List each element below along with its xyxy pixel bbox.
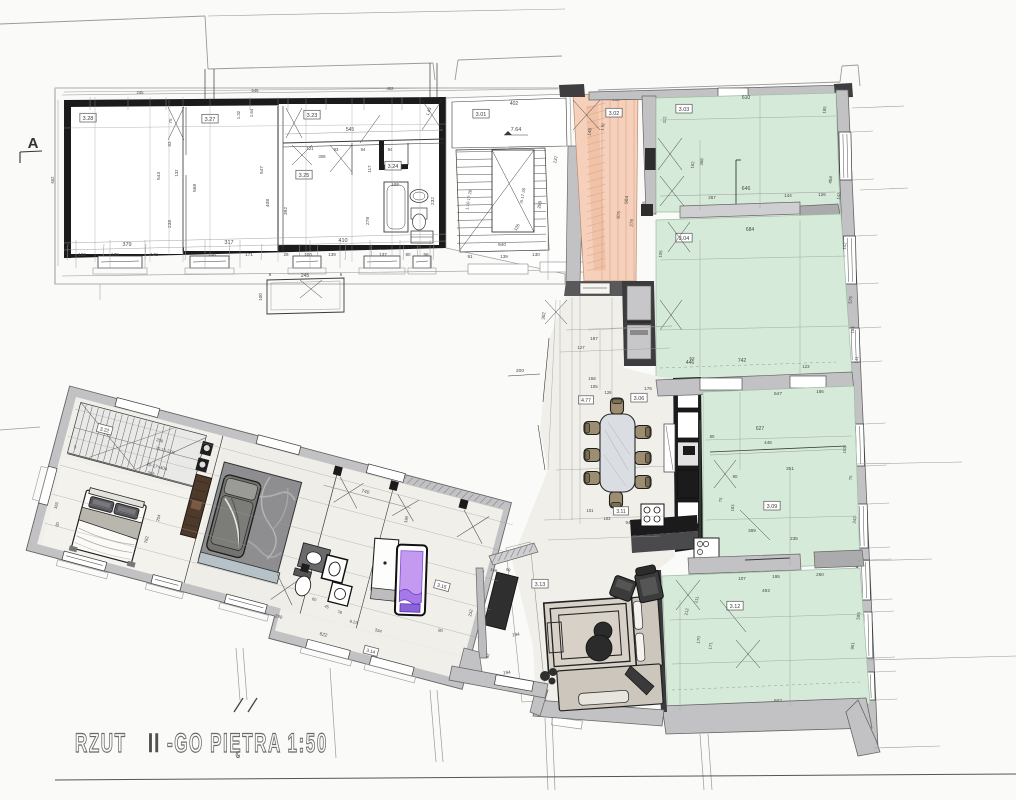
svg-text:742: 742 [738,358,747,364]
svg-text:80: 80 [733,474,738,479]
svg-text:80: 80 [710,434,715,439]
svg-text:132: 132 [174,169,179,177]
svg-text:3.13: 3.13 [535,582,546,588]
svg-text:243: 243 [852,515,858,523]
svg-text:101: 101 [587,508,595,513]
svg-text:176: 176 [644,386,652,391]
svg-text:940: 940 [498,242,506,248]
svg-text:3.09: 3.09 [767,504,778,510]
svg-text:112: 112 [662,116,668,124]
svg-text:610: 610 [742,95,751,101]
svg-text:260: 260 [816,572,824,577]
svg-text:143: 143 [836,191,842,199]
svg-text:3.11: 3.11 [616,509,626,515]
svg-text:94: 94 [388,147,393,152]
svg-text:627: 627 [756,426,765,432]
svg-text:951: 951 [850,641,856,649]
svg-text:404: 404 [828,175,834,183]
svg-text:130: 130 [532,252,540,257]
svg-text:183: 183 [604,516,612,521]
svg-text:575: 575 [848,295,854,303]
svg-text:183: 183 [850,325,856,333]
svg-text:107: 107 [738,576,746,581]
svg-text:RZUT: RZUT [75,728,127,758]
svg-text:121: 121 [306,146,314,151]
svg-text:52: 52 [689,356,695,361]
svg-text:139: 139 [500,254,508,259]
svg-text:168: 168 [588,376,596,381]
svg-text:100: 100 [258,293,263,301]
svg-text:163: 163 [842,446,848,454]
svg-text:595: 595 [856,611,862,619]
svg-text:171: 171 [708,641,714,649]
svg-text:142: 142 [842,241,848,249]
svg-text:267: 267 [708,195,716,200]
svg-text:75: 75 [168,118,173,124]
svg-text:142: 142 [150,252,158,257]
svg-text:492: 492 [762,588,770,594]
svg-text:122: 122 [391,182,399,187]
svg-text:7.64: 7.64 [511,127,522,133]
svg-text:187: 187 [590,336,598,341]
svg-text:392: 392 [283,207,289,215]
svg-text:126: 126 [818,192,826,197]
svg-text:-GO PIĘTRA 1:50: -GO PIĘTRA 1:50 [167,728,328,758]
svg-text:80: 80 [405,252,411,257]
svg-text:200: 200 [516,368,524,374]
svg-text:185: 185 [822,105,828,113]
svg-text:662: 662 [50,176,55,184]
svg-text:547: 547 [774,391,782,397]
svg-text:245: 245 [137,90,145,95]
svg-text:139: 139 [328,252,336,257]
svg-text:402: 402 [387,86,395,91]
svg-text:162: 162 [690,160,696,168]
svg-text:3.28: 3.28 [83,116,94,122]
svg-text:141: 141 [854,355,860,363]
svg-text:408: 408 [265,199,271,207]
svg-text:3.23: 3.23 [307,113,318,119]
svg-text:278: 278 [629,219,634,227]
svg-text:568: 568 [192,184,198,192]
svg-text:446: 446 [764,440,772,445]
svg-text:232: 232 [430,197,436,205]
svg-text:94: 94 [361,147,366,152]
svg-text:A: A [28,135,39,152]
svg-text:195: 195 [772,574,780,579]
svg-text:II: II [148,728,161,758]
svg-text:646: 646 [742,186,751,192]
svg-text:102: 102 [78,252,86,257]
svg-text:183: 183 [730,504,736,512]
svg-text:3.06: 3.06 [634,396,645,402]
svg-text:3.01: 3.01 [476,112,487,118]
svg-text:171: 171 [245,252,253,257]
svg-text:545: 545 [252,88,260,93]
svg-text:4.77: 4.77 [581,398,591,404]
svg-text:278: 278 [365,217,371,225]
svg-text:144: 144 [784,193,792,198]
svg-text:3.02: 3.02 [609,111,620,117]
svg-text:105: 105 [590,384,598,389]
svg-text:186: 186 [816,389,824,394]
svg-text:1.64: 1.64 [249,108,254,117]
svg-text:389: 389 [748,528,756,533]
svg-text:117: 117 [367,165,372,173]
svg-text:317: 317 [224,240,233,246]
svg-text:26: 26 [283,252,289,257]
svg-text:83: 83 [167,141,172,147]
svg-text:875: 875 [616,211,621,219]
svg-text:3.25: 3.25 [299,173,310,179]
svg-text:127: 127 [577,345,585,350]
svg-text:123: 123 [802,364,810,369]
svg-text:302: 302 [541,311,547,319]
svg-text:368: 368 [699,157,705,165]
svg-text:126: 126 [605,390,613,395]
svg-text:904: 904 [624,195,630,204]
svg-text:3.12: 3.12 [730,604,741,610]
svg-text:170: 170 [696,635,702,643]
svg-text:402: 402 [510,101,519,107]
svg-text:105: 105 [658,249,664,257]
svg-text:543: 543 [156,172,162,180]
svg-text:3.03: 3.03 [679,107,690,113]
svg-text:1.32: 1.32 [236,110,241,119]
svg-text:194: 194 [503,670,512,676]
svg-text:3.24: 3.24 [388,164,399,170]
svg-text:91: 91 [467,254,473,259]
svg-text:308: 308 [318,154,326,159]
svg-text:238: 238 [167,220,173,228]
svg-text:379: 379 [122,242,131,248]
svg-text:245: 245 [301,273,310,279]
svg-text:547: 547 [259,166,265,174]
svg-text:684: 684 [746,227,755,233]
svg-text:93: 93 [334,147,339,152]
svg-text:235: 235 [790,536,798,541]
